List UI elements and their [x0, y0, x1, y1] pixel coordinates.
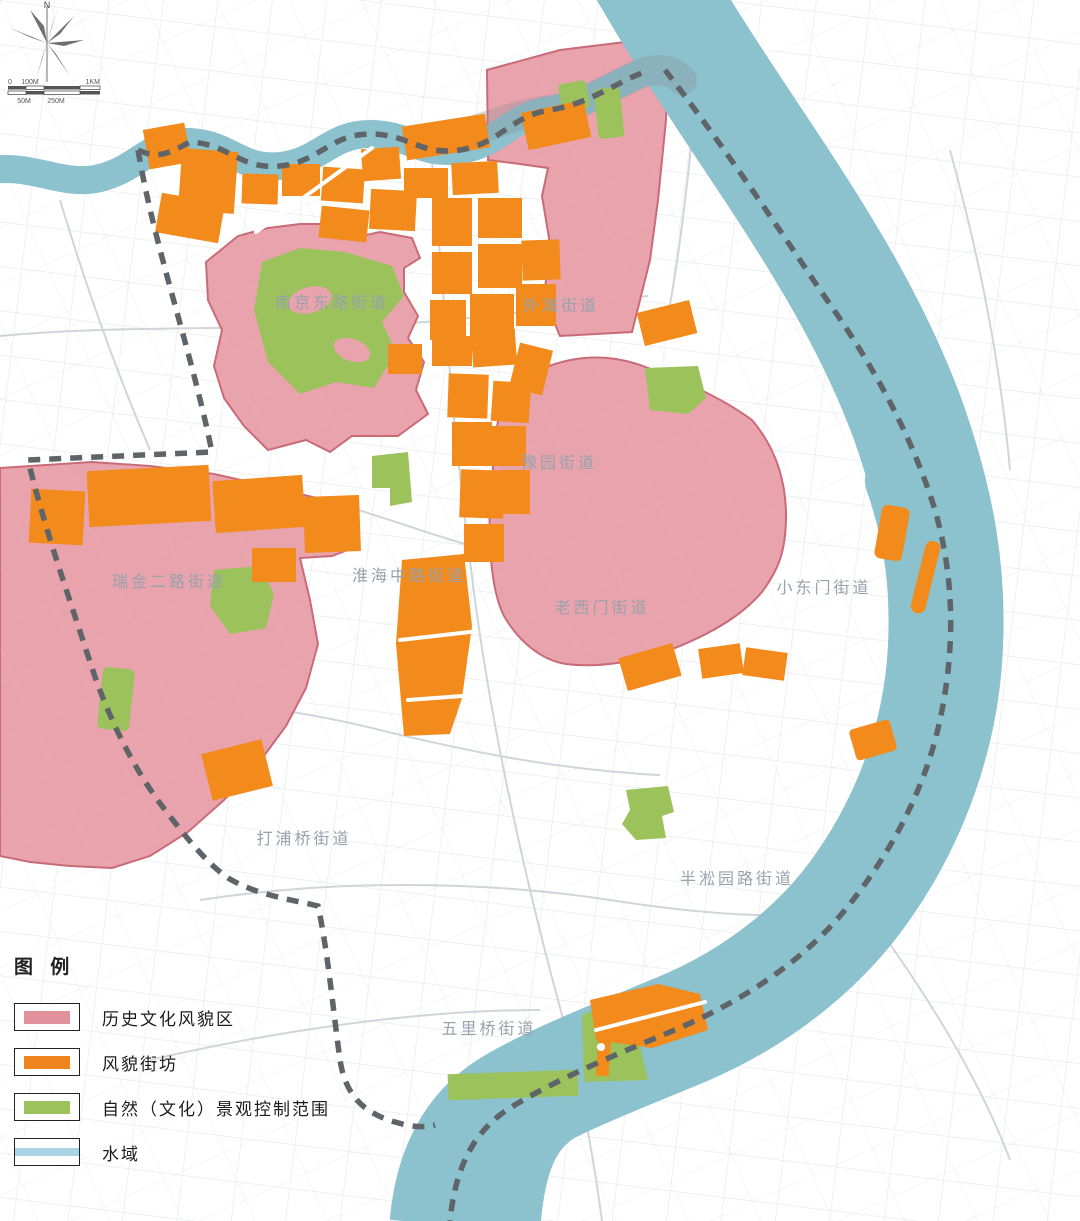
- road-accent-dot: [597, 1043, 605, 1051]
- scale-segment: [44, 86, 80, 90]
- scenic-block: [432, 252, 472, 294]
- legend-item-water: 水域: [14, 1138, 414, 1166]
- landscape-control-swatch-bar: [24, 1101, 70, 1114]
- scenic-block: [212, 475, 305, 533]
- scenic-block: [321, 167, 365, 204]
- legend-item-landscape-control: 自然（文化）景观控制范围: [14, 1093, 414, 1121]
- scenic-block: [404, 168, 448, 198]
- scenic-block: [452, 422, 492, 466]
- district-label-bansongyuan-road: 半淞园路街道: [680, 870, 794, 888]
- historic-area-swatch-bar: [24, 1011, 70, 1024]
- scale-segment: [44, 91, 80, 95]
- district-label-xiaodongmen: 小东门街道: [776, 579, 871, 597]
- scenic-block: [464, 524, 504, 562]
- water-swatch: [14, 1138, 80, 1166]
- district-label-wuliqiao: 五里桥街道: [441, 1020, 536, 1038]
- scenic-block: [303, 495, 361, 553]
- scale-label-100m: 100M: [21, 79, 39, 86]
- scale-segment: [80, 91, 100, 95]
- scenic-block-swatch-bar: [24, 1056, 70, 1069]
- scale-segment: [26, 91, 44, 95]
- legend-title: 图 例: [14, 952, 414, 979]
- scale-label-50m: 50M: [17, 98, 31, 105]
- scale-segment: [80, 86, 100, 90]
- legend-label: 水域: [102, 1140, 140, 1165]
- scale-label-0: 0: [8, 79, 12, 86]
- landscape-control-swatch: [14, 1093, 80, 1121]
- legend-item-historic-area: 历史文化风貌区: [14, 1003, 414, 1031]
- landscape-riverfront-strip: [448, 1070, 579, 1101]
- district-label-dapuqiao: 打浦桥街道: [256, 830, 351, 848]
- scenic-block: [318, 206, 369, 243]
- compass-north-label: N: [44, 0, 51, 10]
- scenic-block: [478, 244, 522, 288]
- scenic-block: [430, 300, 466, 340]
- legend-item-scenic-block: 风貌街坊: [14, 1048, 414, 1076]
- scenic-block-swatch: [14, 1048, 80, 1076]
- scenic-block: [241, 173, 278, 204]
- historic-area-swatch: [14, 1003, 80, 1031]
- scenic-block: [388, 344, 422, 374]
- scenic-block: [478, 198, 522, 238]
- scenic-block: [432, 198, 472, 246]
- scenic-block: [742, 647, 787, 681]
- district-label-huaihai-mid-road: 淮海中路街道: [352, 567, 466, 585]
- scenic-block: [451, 161, 499, 195]
- district-label-nanjing-east-road: 南京东路街道: [275, 294, 389, 312]
- scenic-block: [432, 336, 472, 366]
- scale-segment: [8, 86, 26, 90]
- scale-segment: [26, 86, 44, 90]
- scenic-block: [447, 373, 489, 418]
- scenic-block: [698, 643, 744, 679]
- district-label-yuyuan: 豫园街道: [521, 454, 597, 472]
- scenic-block: [459, 469, 505, 519]
- district-label-laoximen: 老西门街道: [554, 599, 649, 617]
- district-label-bund: 外滩街道: [523, 297, 599, 315]
- scenic-block: [491, 381, 532, 424]
- legend-label: 自然（文化）景观控制范围: [102, 1095, 330, 1120]
- scale-segment: [8, 91, 26, 95]
- scale-label-1km: 1KM: [86, 79, 101, 86]
- scale-label-250m: 250M: [47, 98, 65, 105]
- legend: 图 例 历史文化风貌区 风貌街坊 自然（文化）景观控制范围 水域: [14, 952, 414, 1183]
- district-label-ruijin-2nd-road: 瑞金二路街道: [112, 573, 226, 591]
- scenic-block: [252, 548, 296, 582]
- legend-label: 历史文化风貌区: [102, 1005, 235, 1030]
- scenic-block: [87, 465, 212, 527]
- legend-label: 风貌街坊: [102, 1050, 178, 1075]
- scenic-block: [471, 329, 517, 368]
- scenic-block: [521, 239, 560, 280]
- scenic-block: [500, 470, 530, 514]
- water-swatch-bar: [15, 1148, 79, 1156]
